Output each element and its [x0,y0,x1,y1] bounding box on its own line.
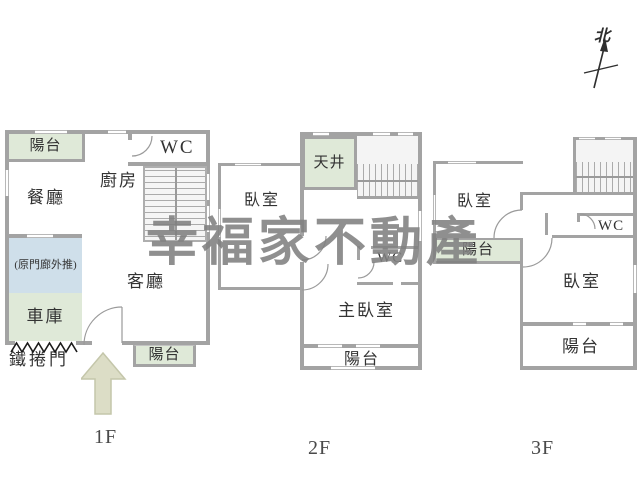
wall [520,192,576,195]
floor-label-3f: 3F [531,437,554,460]
wall [577,213,637,216]
room-label-dining: 餐廳 [27,189,65,208]
wall [5,341,15,345]
room-label-lightwell: 天井 [313,155,345,172]
room-label-balcony-top: 陽台 [29,138,61,155]
staircase [576,140,633,192]
balcony-room: 陽台 [133,345,196,367]
wall [520,366,637,370]
room-label-roller-door: 鐵捲門 [9,351,69,370]
wall [128,130,132,140]
garage-room: 車庫 [9,293,82,341]
stair-divider [576,176,633,178]
wall [520,238,523,370]
window-marker [318,344,342,348]
wall [357,282,393,285]
room-label-balcony-bottom: 陽台 [148,347,180,364]
floor-plan-canvas: 幸福家不動產 北 陽台 (原門廊外推) [0,0,640,480]
wall [401,282,422,285]
north-compass: 北 [578,22,630,94]
floor-label-1f: 1F [94,426,117,449]
room-label-porch: (原門廊外推) [14,259,76,271]
room-label-kitchen: 廚房 [100,172,138,191]
window-marker [633,265,637,293]
wall [573,192,637,195]
window-marker [610,322,623,326]
window-marker [356,344,380,348]
room-label-wc: WC [598,218,624,235]
staircase [357,136,418,196]
entrance-arrow-icon [81,352,127,416]
room-label-living: 客廳 [127,273,165,292]
wall [218,287,304,290]
window-marker [448,161,476,164]
room-label-master-bedroom: 主臥室 [338,302,395,321]
porch-room: (原門廊外推) [9,238,82,293]
wall [545,213,548,235]
room-label-balcony-bottom: 陽台 [562,338,600,357]
wall [300,262,304,370]
wall [433,161,523,164]
balcony-room: 陽台 [9,134,85,162]
room-label-bedroom-right: 臥室 [563,273,601,292]
room-label-balcony-bottom: 陽台 [344,351,380,369]
wall [577,213,580,222]
wall [520,192,523,210]
watermark: 幸福家不動產 [146,200,482,275]
room-label-garage: 車庫 [27,308,65,327]
wall [218,163,304,166]
floor-label-2f: 2F [308,437,331,460]
window-marker [235,163,261,166]
wall [552,235,637,238]
stair-divider [357,180,418,182]
room-label-wc: WC [160,138,195,159]
lightwell-room: 天井 [302,136,357,190]
wall [633,137,637,370]
north-label: 北 [594,22,610,46]
window-marker [5,170,9,196]
wall [357,196,422,199]
window-marker [108,130,126,134]
window-marker [573,322,586,326]
